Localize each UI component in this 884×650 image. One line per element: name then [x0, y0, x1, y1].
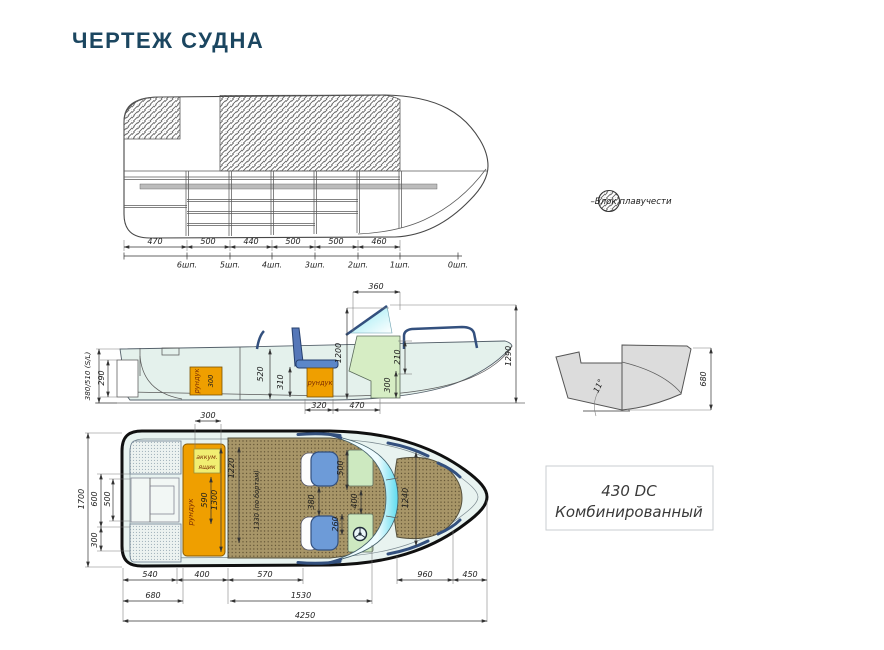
buoyancy-block-stern: [124, 97, 180, 139]
drawing-page: ЧЕРТЕЖ СУДНА: [0, 0, 884, 650]
dim-1300: 1300: [210, 490, 219, 510]
plan-view: аккум. ящик рундук 1330 (по бортам): [77, 411, 487, 622]
buoyancy-block-main: [220, 95, 400, 171]
dim-1530: 1530: [291, 591, 311, 600]
dim-260: 260: [331, 516, 340, 531]
dim-400b: 400: [194, 570, 209, 579]
dim-680-plan: 680: [145, 591, 160, 600]
dim-310: 310: [276, 374, 285, 389]
dim-300-console: 300: [383, 377, 392, 392]
transom-right-half: [622, 345, 691, 410]
dim-450: 450: [462, 570, 477, 579]
dim-470: 470: [147, 237, 162, 246]
frame-6: 6шп.: [177, 261, 197, 270]
model-type: Комбинированный: [555, 503, 703, 521]
transom-left-half: [556, 352, 622, 410]
frame-2: 2шп.: [348, 261, 368, 270]
dim-320: 320: [311, 401, 326, 410]
dim-960: 960: [417, 570, 432, 579]
motor-well: [131, 478, 179, 522]
side-locker1-dim: 300: [207, 375, 215, 388]
dim-500a: 500: [200, 237, 215, 246]
battery-label-2: ящик: [198, 464, 216, 471]
dim-1220: 1220: [227, 458, 236, 478]
frame-1: 1шп.: [390, 261, 410, 270]
dim-300-stern: 300: [90, 532, 99, 547]
dim-540: 540: [142, 570, 157, 579]
transom-view: 11° 680: [556, 345, 711, 416]
dim-1290: 1290: [504, 346, 513, 366]
frame-0: 0шп.: [448, 261, 468, 270]
top-view-dimensions: 470 500 440 500 500 460 6шп. 5шп. 4шп. 3…: [124, 237, 468, 270]
dim-570: 570: [257, 570, 272, 579]
dim-520: 520: [256, 366, 265, 381]
top-structure-view: 470 500 440 500 500 460 6шп. 5шп. 4шп. 3…: [124, 95, 488, 270]
dim-440: 440: [243, 237, 258, 246]
frame-5: 5шп.: [220, 261, 240, 270]
dim-500c: 500: [328, 237, 343, 246]
transom-height-label: 380/510 (S/L): [83, 351, 92, 400]
dim-1700: 1700: [77, 489, 86, 509]
plan-locker-label: рундук: [186, 498, 195, 527]
dim-470-console: 470: [349, 401, 364, 410]
hull-internal-structure: [124, 169, 486, 236]
legend-label: –Блок плавучести: [590, 197, 671, 207]
dim-290: 290: [97, 370, 106, 385]
dim-1240: 1240: [401, 488, 410, 508]
dim-500b: 500: [285, 237, 300, 246]
boat-drawing: 470 500 440 500 500 460 6шп. 5шп. 4шп. 3…: [0, 0, 884, 650]
frame-3: 3шп.: [305, 261, 325, 270]
helm-seat-cushion: [296, 360, 338, 368]
dim-4250: 4250: [295, 611, 315, 620]
side-locker2-label: рундук: [307, 379, 333, 387]
stern-seat-bottom: [130, 524, 181, 562]
dim-210: 210: [393, 349, 402, 364]
dim-500-console: 500: [336, 460, 345, 475]
stern-seat-top: [130, 441, 181, 474]
dim-300-battery: 300: [200, 411, 215, 420]
dim-360: 360: [368, 282, 383, 291]
dim-600: 600: [90, 491, 99, 506]
legend: –Блок плавучести: [590, 191, 671, 212]
side-locker1-label: рундук: [193, 369, 201, 395]
dim-500-stern: 500: [103, 491, 112, 506]
dim-590: 590: [200, 492, 209, 507]
frame-4: 4шп.: [262, 261, 282, 270]
dim-680: 680: [699, 371, 708, 386]
model-label-box: 430 DC Комбинированный: [546, 466, 713, 530]
dim-1200: 1200: [334, 343, 343, 363]
dim-400: 400: [350, 493, 359, 508]
dim-460: 460: [371, 237, 386, 246]
steering-wheel-icon: [354, 528, 367, 541]
side-view: рундук 300 рундук: [83, 282, 525, 414]
model-name: 430 DC: [601, 482, 657, 500]
cockpit-width-label: 1330 (по бортам): [253, 470, 261, 530]
dim-380: 380: [307, 494, 316, 509]
battery-label-1: аккум.: [196, 454, 218, 461]
passenger-seat: [301, 452, 338, 486]
